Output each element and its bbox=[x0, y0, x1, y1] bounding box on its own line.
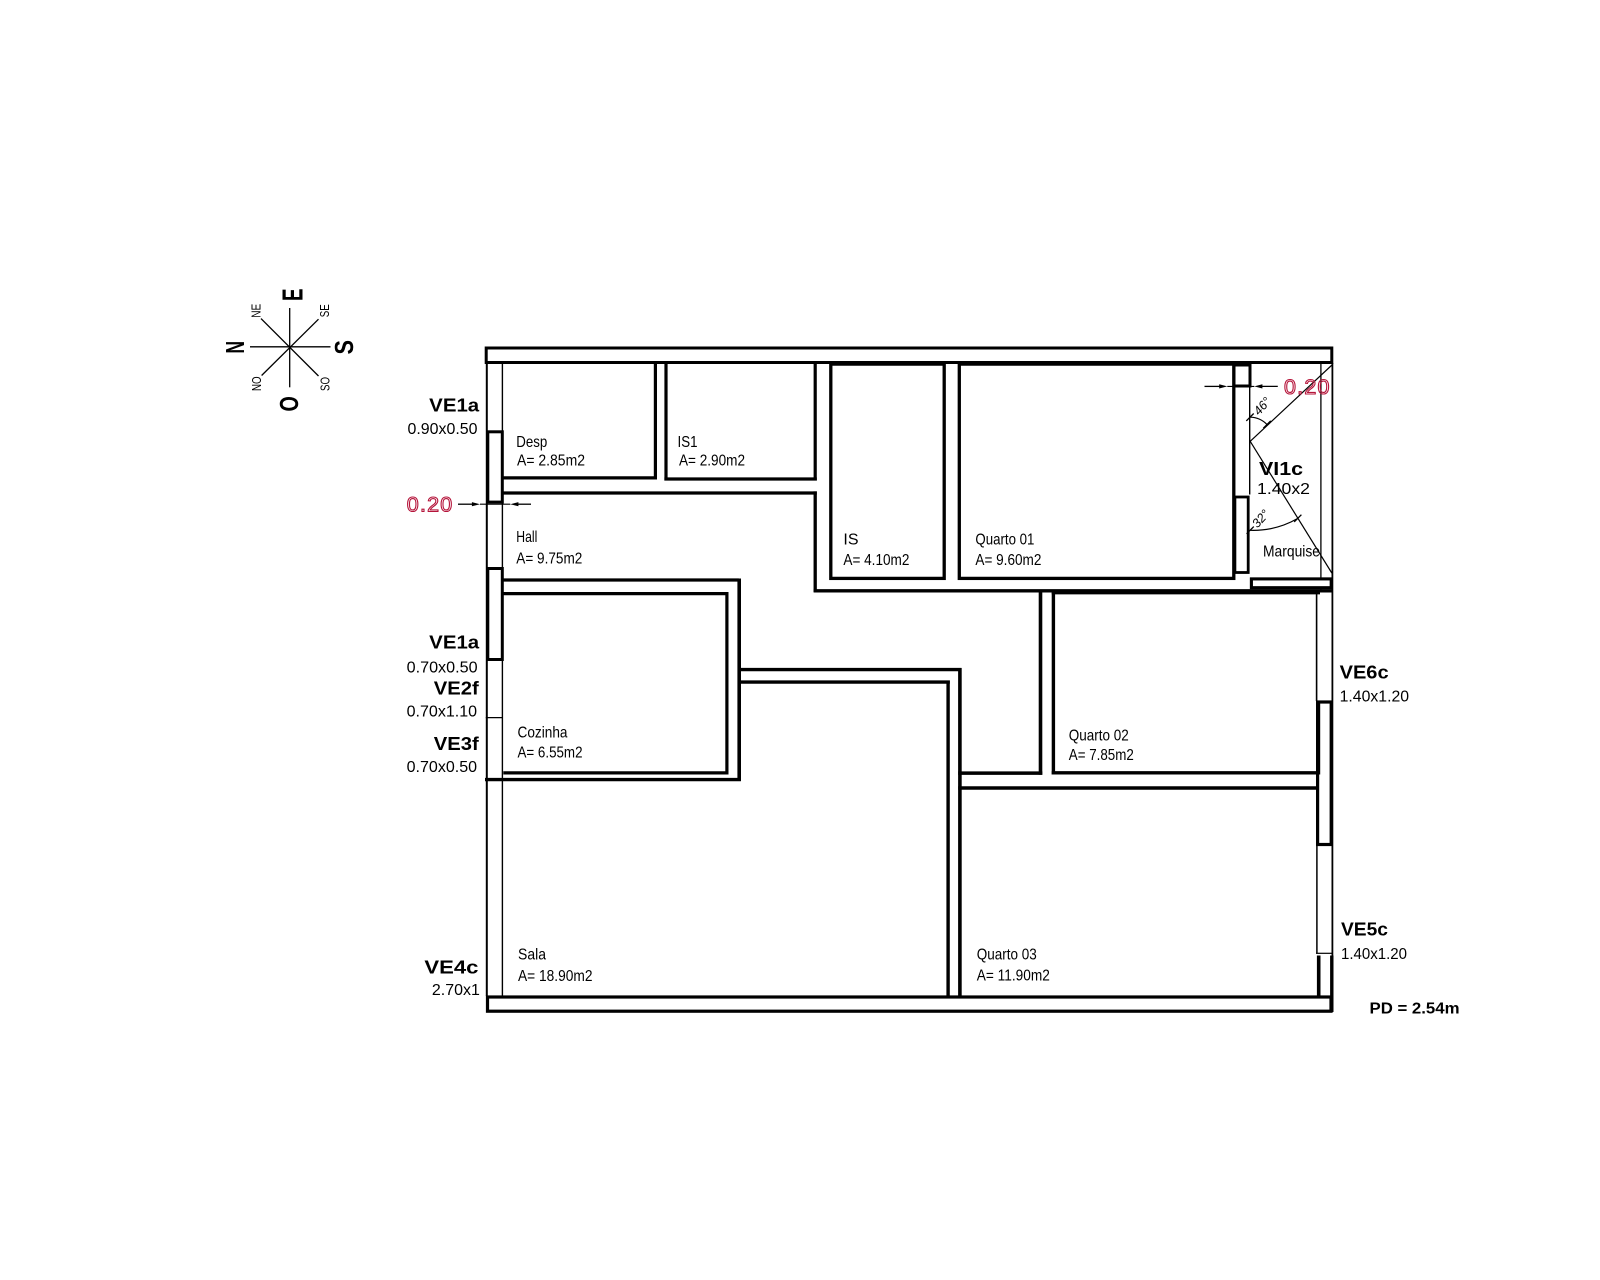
svg-text:0.70x0.50: 0.70x0.50 bbox=[407, 660, 478, 677]
svg-text:Desp: Desp bbox=[516, 434, 547, 451]
svg-text:PD = 2.54m: PD = 2.54m bbox=[1370, 1001, 1460, 1018]
svg-text:IS1: IS1 bbox=[678, 434, 698, 451]
svg-text:VE2f: VE2f bbox=[434, 679, 480, 699]
svg-text:VI1c: VI1c bbox=[1259, 459, 1303, 479]
svg-text:O: O bbox=[274, 396, 304, 411]
svg-text:Quarto 02: Quarto 02 bbox=[1069, 728, 1129, 745]
svg-text:A= 2.85m2: A= 2.85m2 bbox=[517, 453, 585, 470]
svg-text:0.70x0.50: 0.70x0.50 bbox=[407, 759, 478, 776]
svg-text:1.40x2: 1.40x2 bbox=[1257, 481, 1310, 498]
svg-text:NO: NO bbox=[249, 376, 264, 391]
svg-text:A= 18.90m2: A= 18.90m2 bbox=[518, 968, 593, 985]
svg-text:Marquise: Marquise bbox=[1263, 544, 1320, 561]
svg-text:0.20: 0.20 bbox=[1284, 375, 1331, 399]
svg-text:Cozinha: Cozinha bbox=[518, 725, 568, 742]
svg-text:1.40x1.20: 1.40x1.20 bbox=[1340, 689, 1410, 706]
svg-text:IS: IS bbox=[843, 532, 858, 549]
svg-text:2.70x1: 2.70x1 bbox=[432, 982, 480, 999]
svg-text:S: S bbox=[329, 340, 359, 355]
svg-text:A= 2.90m2: A= 2.90m2 bbox=[679, 453, 745, 470]
svg-text:VE5c: VE5c bbox=[1341, 920, 1388, 940]
svg-text:SE: SE bbox=[317, 304, 332, 317]
svg-text:VE4c: VE4c bbox=[424, 958, 478, 978]
svg-text:VE1a: VE1a bbox=[429, 633, 480, 653]
svg-text:Quarto 01: Quarto 01 bbox=[975, 532, 1034, 549]
svg-text:0.20: 0.20 bbox=[407, 492, 454, 516]
svg-text:VE1a: VE1a bbox=[429, 396, 480, 416]
svg-text:NE: NE bbox=[248, 304, 263, 318]
svg-text:A= 7.85m2: A= 7.85m2 bbox=[1069, 747, 1134, 764]
svg-text:A= 9.75m2: A= 9.75m2 bbox=[516, 551, 582, 568]
svg-text:VE6c: VE6c bbox=[1340, 663, 1389, 683]
svg-text:Sala: Sala bbox=[518, 947, 546, 964]
svg-text:A= 9.60m2: A= 9.60m2 bbox=[975, 552, 1041, 569]
svg-text:A= 4.10m2: A= 4.10m2 bbox=[843, 552, 909, 569]
svg-text:0.70x1.10: 0.70x1.10 bbox=[407, 704, 478, 721]
svg-text:A= 6.55m2: A= 6.55m2 bbox=[518, 745, 583, 762]
svg-text:VE3f: VE3f bbox=[434, 734, 480, 754]
svg-text:Quarto 03: Quarto 03 bbox=[977, 947, 1037, 964]
svg-text:E: E bbox=[278, 289, 310, 302]
svg-text:1.40x1.20: 1.40x1.20 bbox=[1341, 946, 1407, 963]
svg-text:Hall: Hall bbox=[516, 529, 537, 546]
svg-text:SO: SO bbox=[317, 377, 332, 391]
svg-text:N: N bbox=[220, 341, 250, 354]
svg-text:A= 11.90m2: A= 11.90m2 bbox=[977, 968, 1050, 985]
svg-text:0.90x0.50: 0.90x0.50 bbox=[408, 421, 478, 438]
